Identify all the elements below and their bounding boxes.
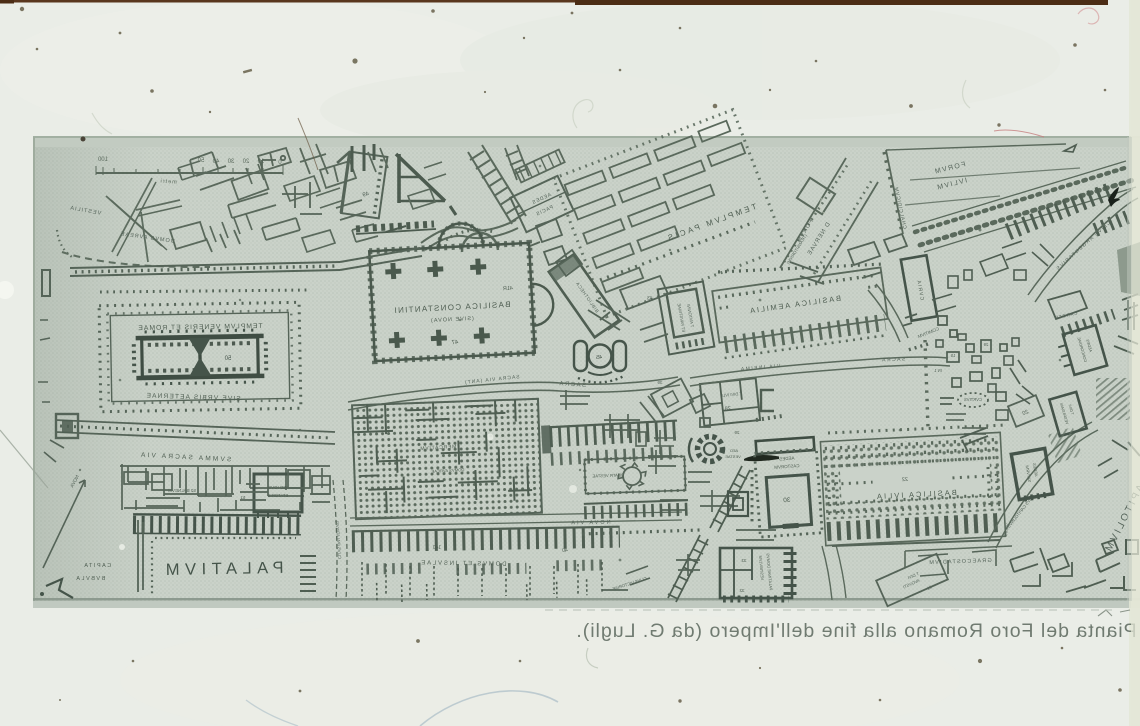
svg-text:PALATIVM: PALATIVM: [160, 559, 283, 579]
svg-text:AED IOVIS: AED IOVIS: [267, 485, 289, 490]
svg-text:30: 30: [227, 159, 234, 165]
svg-text:33: 33: [741, 558, 747, 563]
svg-text:28: 28: [725, 406, 732, 413]
svg-text:140: 140: [433, 545, 442, 551]
svg-text:39: 39: [657, 380, 663, 385]
svg-text:50: 50: [224, 356, 231, 362]
svg-text:VESTAE: VESTAE: [725, 454, 741, 459]
svg-text:CAPITA: CAPITA: [83, 563, 111, 569]
svg-text:22: 22: [902, 477, 908, 483]
svg-text:30: 30: [783, 497, 791, 505]
svg-text:20: 20: [242, 159, 249, 165]
svg-text:45: 45: [596, 355, 602, 361]
svg-text:BVBVLA: BVBVLA: [75, 576, 105, 582]
svg-text:47: 47: [451, 340, 459, 346]
svg-text:AED: AED: [730, 448, 738, 453]
svg-text:CVRTIVS: CVRTIVS: [964, 397, 982, 402]
svg-text:100: 100: [97, 157, 108, 163]
svg-text:STATORIS: STATORIS: [267, 493, 288, 498]
svg-text:32: 32: [739, 588, 745, 593]
svg-text:SACRA: SACRA: [881, 357, 906, 364]
svg-text:15: 15: [950, 353, 955, 358]
svg-text:41R: 41R: [503, 286, 513, 293]
svg-text:29: 29: [983, 342, 988, 347]
svg-text:metri: metri: [159, 178, 177, 185]
svg-text:IN 1: IN 1: [933, 368, 941, 373]
svg-text:40: 40: [562, 548, 568, 554]
svg-text:AEDES: AEDES: [779, 455, 795, 461]
svg-text:29: 29: [734, 430, 740, 435]
svg-text:NOVA VIA: NOVA VIA: [569, 520, 610, 527]
svg-text:Pianta del Foro Romano alla fi: Pianta del Foro Romano alla fine dell'Im…: [575, 620, 1136, 642]
